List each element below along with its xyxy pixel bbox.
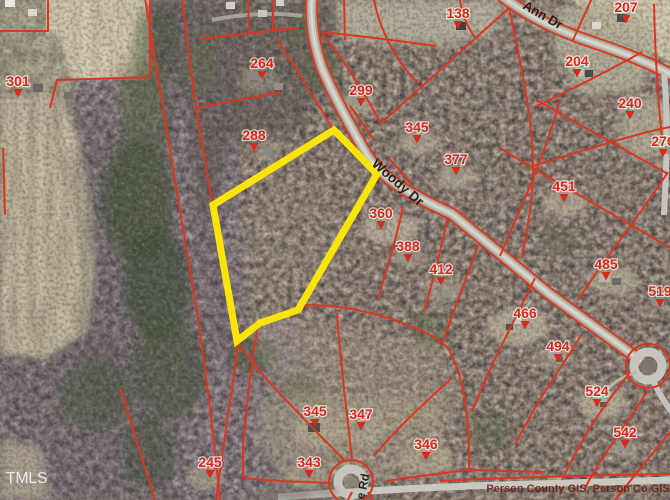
svg-text:360: 360: [369, 205, 393, 221]
svg-text:245: 245: [198, 454, 222, 470]
svg-text:346: 346: [414, 436, 438, 452]
svg-text:345: 345: [405, 119, 429, 135]
svg-text:264: 264: [250, 55, 274, 71]
svg-text:377: 377: [444, 151, 468, 167]
svg-text:343: 343: [297, 454, 321, 470]
svg-text:Person County GIS, Person Co G: Person County GIS, Person Co GIS: [486, 483, 669, 495]
svg-text:138: 138: [446, 5, 470, 21]
svg-text:345: 345: [303, 403, 327, 419]
svg-text:240: 240: [618, 95, 642, 111]
svg-text:412: 412: [429, 261, 453, 277]
svg-text:204: 204: [565, 53, 589, 69]
svg-text:542: 542: [613, 424, 637, 440]
svg-text:519: 519: [648, 283, 670, 299]
svg-text:494: 494: [546, 338, 570, 354]
svg-text:288: 288: [242, 127, 266, 143]
svg-text:485: 485: [594, 256, 618, 272]
svg-text:301: 301: [6, 73, 30, 89]
svg-text:388: 388: [396, 238, 420, 254]
svg-text:451: 451: [552, 178, 576, 194]
svg-text:276: 276: [651, 133, 670, 149]
svg-text:524: 524: [585, 383, 609, 399]
svg-text:TMLS: TMLS: [6, 470, 47, 487]
svg-text:466: 466: [513, 305, 537, 321]
svg-text:299: 299: [349, 82, 373, 98]
svg-text:207: 207: [614, 0, 638, 15]
svg-text:347: 347: [349, 406, 373, 422]
